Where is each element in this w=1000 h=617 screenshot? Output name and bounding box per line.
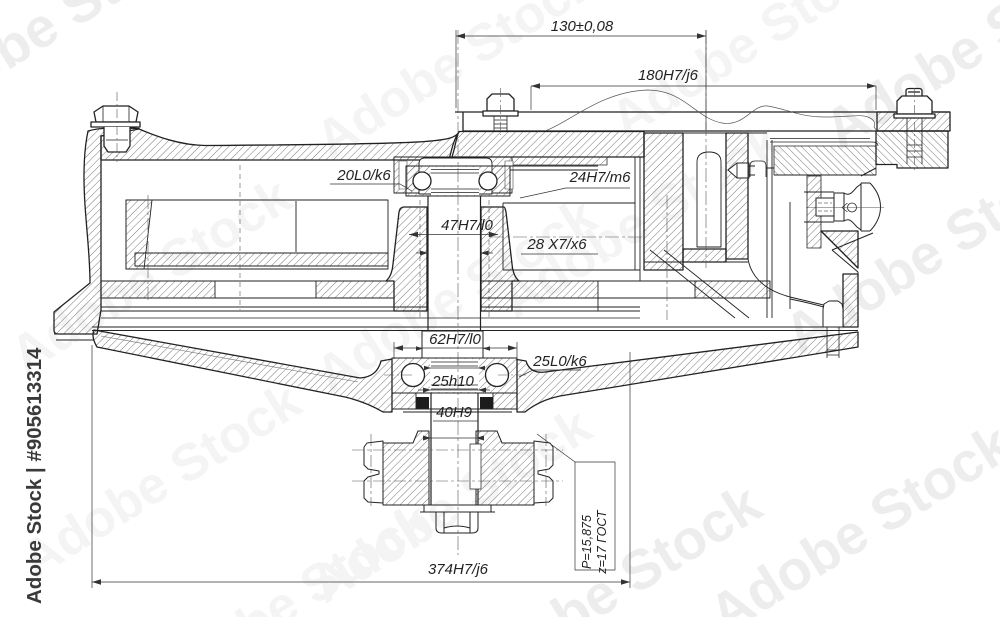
svg-text:47H7/l0: 47H7/l0	[441, 217, 493, 234]
svg-text:24H7/m6: 24H7/m6	[569, 169, 632, 186]
svg-text:40H9: 40H9	[436, 404, 473, 421]
svg-text:z=17 ГОСТ: z=17 ГОСТ	[595, 509, 609, 575]
svg-text:374H7/j6: 374H7/j6	[428, 561, 489, 578]
svg-text:130±0,08: 130±0,08	[551, 18, 614, 35]
svg-text:P=15,875: P=15,875	[580, 515, 594, 569]
svg-text:25L0/k6: 25L0/k6	[532, 353, 587, 370]
svg-text:28 X7/x6: 28 X7/x6	[526, 236, 587, 253]
svg-text:20L0/k6: 20L0/k6	[336, 167, 391, 184]
svg-text:Adobe Stock | #905613314: Adobe Stock | #905613314	[23, 347, 46, 604]
svg-text:180H7/j6: 180H7/j6	[638, 67, 699, 84]
svg-text:25h10: 25h10	[431, 373, 474, 390]
svg-text:62H7/l0: 62H7/l0	[429, 331, 481, 348]
